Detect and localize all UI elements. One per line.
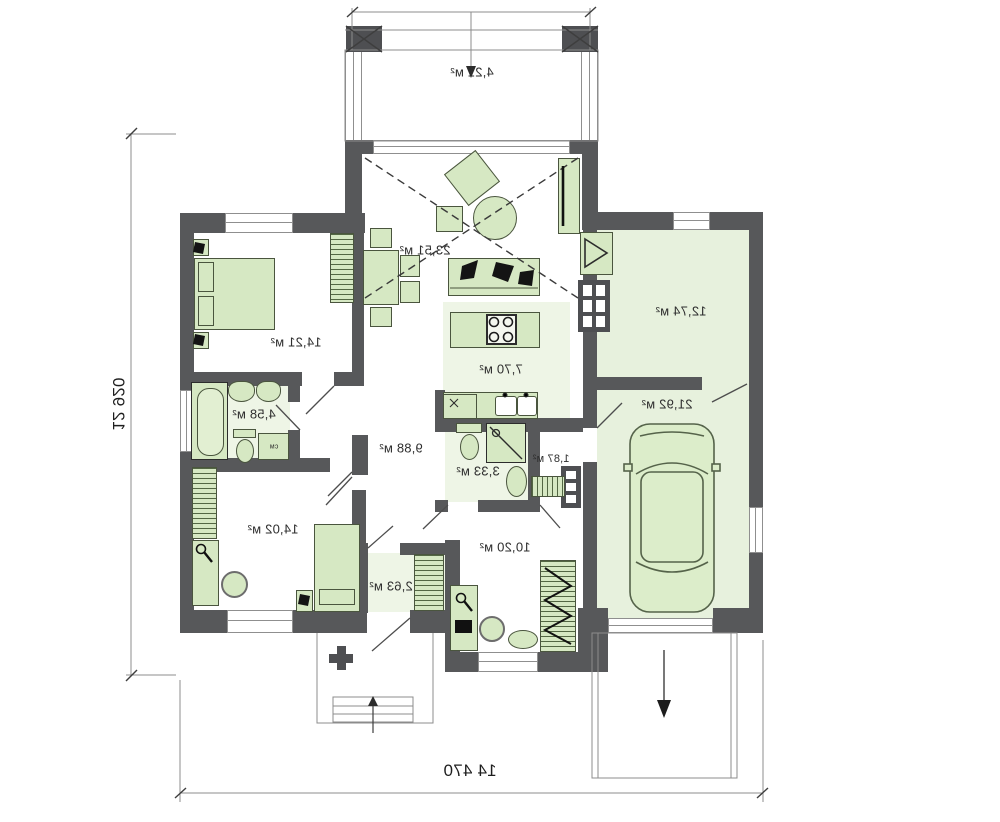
dresser (450, 585, 478, 651)
toilet-tank (456, 423, 482, 433)
nightstand (193, 332, 209, 349)
wardrobe (330, 233, 354, 303)
wall (345, 140, 375, 154)
terrace-area-label: 4,21 м² (450, 65, 494, 80)
bathroom-area-label: 4,58 м² (232, 407, 276, 422)
radiator (531, 476, 565, 497)
wall (713, 608, 763, 633)
chimney-block (578, 280, 610, 332)
height-dimension-label: 12 920 (108, 377, 128, 430)
floor-plan: 4,21 м² 23,51 м² 14,21 м² 7,70 м² 4,58 м… (0, 0, 1000, 822)
fireplace (580, 232, 613, 275)
window-utility (673, 212, 710, 230)
washbasin (256, 381, 281, 402)
corridor-area-label: 10,20 м² (479, 540, 530, 555)
terrace-column-right (562, 26, 598, 52)
toilet-tank (233, 429, 256, 438)
sink (517, 396, 537, 416)
garage-door (608, 618, 713, 633)
sink (495, 396, 517, 416)
hall-area-label: 9,88 м² (379, 441, 423, 456)
coat-closet (540, 560, 576, 652)
wc-area-label: 3,33 м² (456, 464, 500, 479)
rug (508, 630, 538, 649)
wall (288, 386, 300, 402)
wall (180, 610, 227, 633)
nightstand (193, 239, 209, 256)
garage-area-label: 21,92 м² (641, 397, 692, 412)
living-area-label: 23,51 м² (399, 243, 450, 258)
garage-floor (597, 380, 749, 620)
bedroom-top-area-label: 14,21 м² (270, 335, 321, 350)
chair (370, 228, 392, 248)
armchair (436, 206, 463, 232)
wall (435, 500, 448, 512)
washbasin (228, 381, 255, 402)
shower (486, 423, 526, 463)
washing-machine-label: см (270, 444, 279, 451)
wc-sink (506, 466, 527, 497)
wall (478, 500, 540, 512)
pouf (221, 571, 248, 598)
wardrobe (192, 467, 217, 539)
wall (345, 140, 362, 235)
dining-table (363, 250, 399, 305)
chair (370, 307, 392, 327)
terrace-side-right (581, 50, 598, 141)
pillow (198, 262, 214, 292)
pillow (319, 589, 355, 605)
wall (597, 377, 702, 390)
terrace-column-left (346, 26, 382, 52)
width-dimension-label: 14 470 (443, 761, 496, 781)
closet-area-label: 2,63 м² (369, 579, 413, 594)
toilet-bowl (460, 434, 479, 460)
pillow (198, 296, 214, 326)
vestibule-area-label: 1,87 м² (532, 453, 569, 465)
fridge (443, 394, 477, 419)
terrace-side-left (345, 50, 362, 141)
wardrobe (414, 554, 444, 611)
wall (749, 212, 763, 507)
stool (479, 616, 505, 642)
wall (583, 462, 597, 610)
wall (180, 213, 225, 233)
chair (400, 255, 420, 277)
entrance-door (478, 652, 538, 672)
bedroom-bottom-area-label: 14,02 м² (247, 522, 298, 537)
bathtub-inner (197, 388, 224, 456)
wall (352, 435, 368, 475)
stove (486, 314, 517, 345)
window-garage (749, 507, 763, 553)
tv-cabinet (558, 158, 580, 234)
window-bedroom-bottom (227, 610, 293, 633)
wall (293, 610, 367, 633)
window-bedroom-top (225, 213, 293, 233)
wall (582, 212, 673, 230)
coffee-table (473, 196, 517, 240)
kitchen-area-label: 7,70 м² (479, 362, 523, 377)
sofa (448, 258, 540, 296)
nightstand (296, 590, 313, 612)
utility-area-label: 12,74 м² (655, 304, 706, 319)
wall (538, 652, 583, 672)
porch-column (337, 646, 346, 670)
toilet-bowl (236, 439, 254, 463)
chair (400, 281, 420, 303)
desk (192, 540, 219, 606)
